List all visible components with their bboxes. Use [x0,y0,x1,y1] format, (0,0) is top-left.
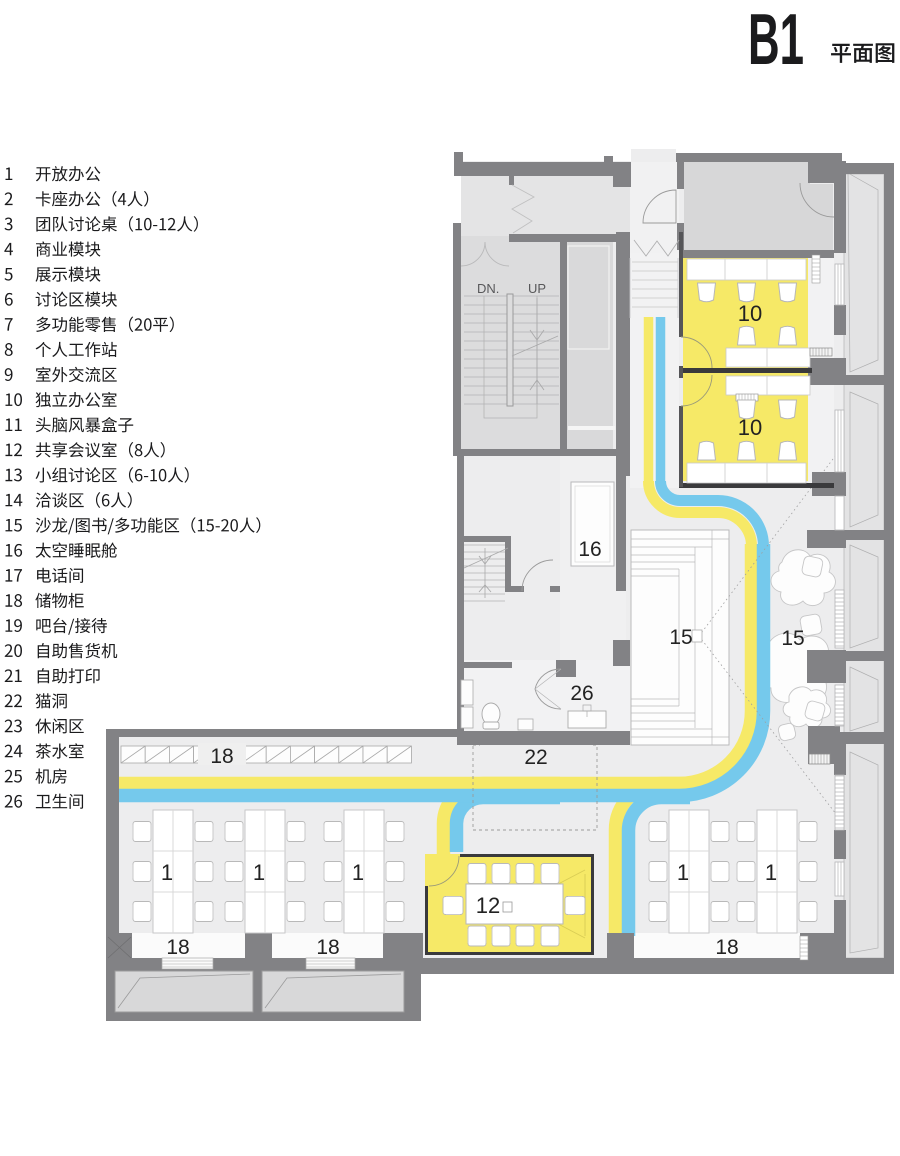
svg-text:18: 18 [316,936,339,959]
svg-text:18: 18 [210,745,233,768]
svg-text:26: 26 [570,682,593,705]
svg-text:1: 1 [765,860,777,885]
svg-text:10: 10 [738,301,762,326]
svg-text:1: 1 [352,860,364,885]
svg-text:B1: B1 [748,0,804,80]
svg-text:12: 12 [476,893,500,918]
svg-text:22: 22 [524,746,547,769]
svg-text:15: 15 [781,627,804,650]
svg-text:15: 15 [669,626,692,649]
svg-text:UP: UP [528,281,546,296]
svg-text:18: 18 [166,936,189,959]
svg-text:1: 1 [161,860,173,885]
svg-text:10: 10 [738,415,762,440]
svg-text:16: 16 [578,538,601,561]
svg-text:1: 1 [677,860,689,885]
svg-text:18: 18 [715,936,738,959]
svg-text:DN.: DN. [477,281,499,296]
svg-text:1: 1 [253,860,265,885]
